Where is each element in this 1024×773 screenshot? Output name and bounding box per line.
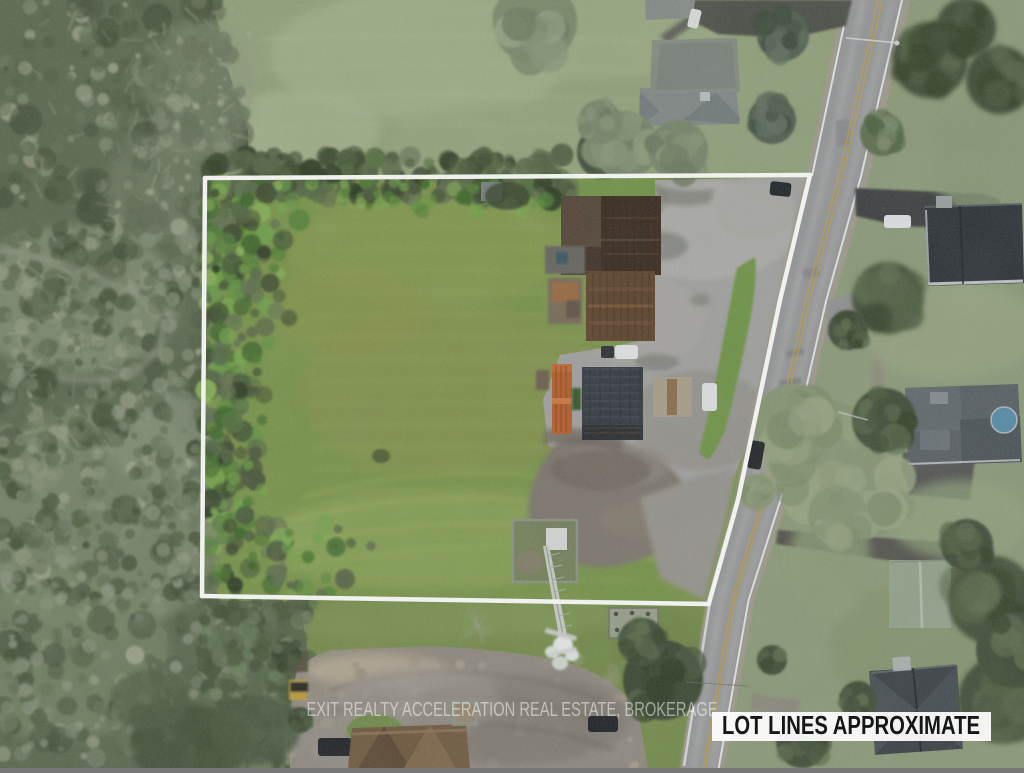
svg-text:EXIT REALTY ACCELERATION REAL: EXIT REALTY ACCELERATION REAL ESTATE, BR…: [307, 698, 718, 721]
svg-text:LOT LINES APPROXIMATE: LOT LINES APPROXIMATE: [722, 710, 980, 740]
